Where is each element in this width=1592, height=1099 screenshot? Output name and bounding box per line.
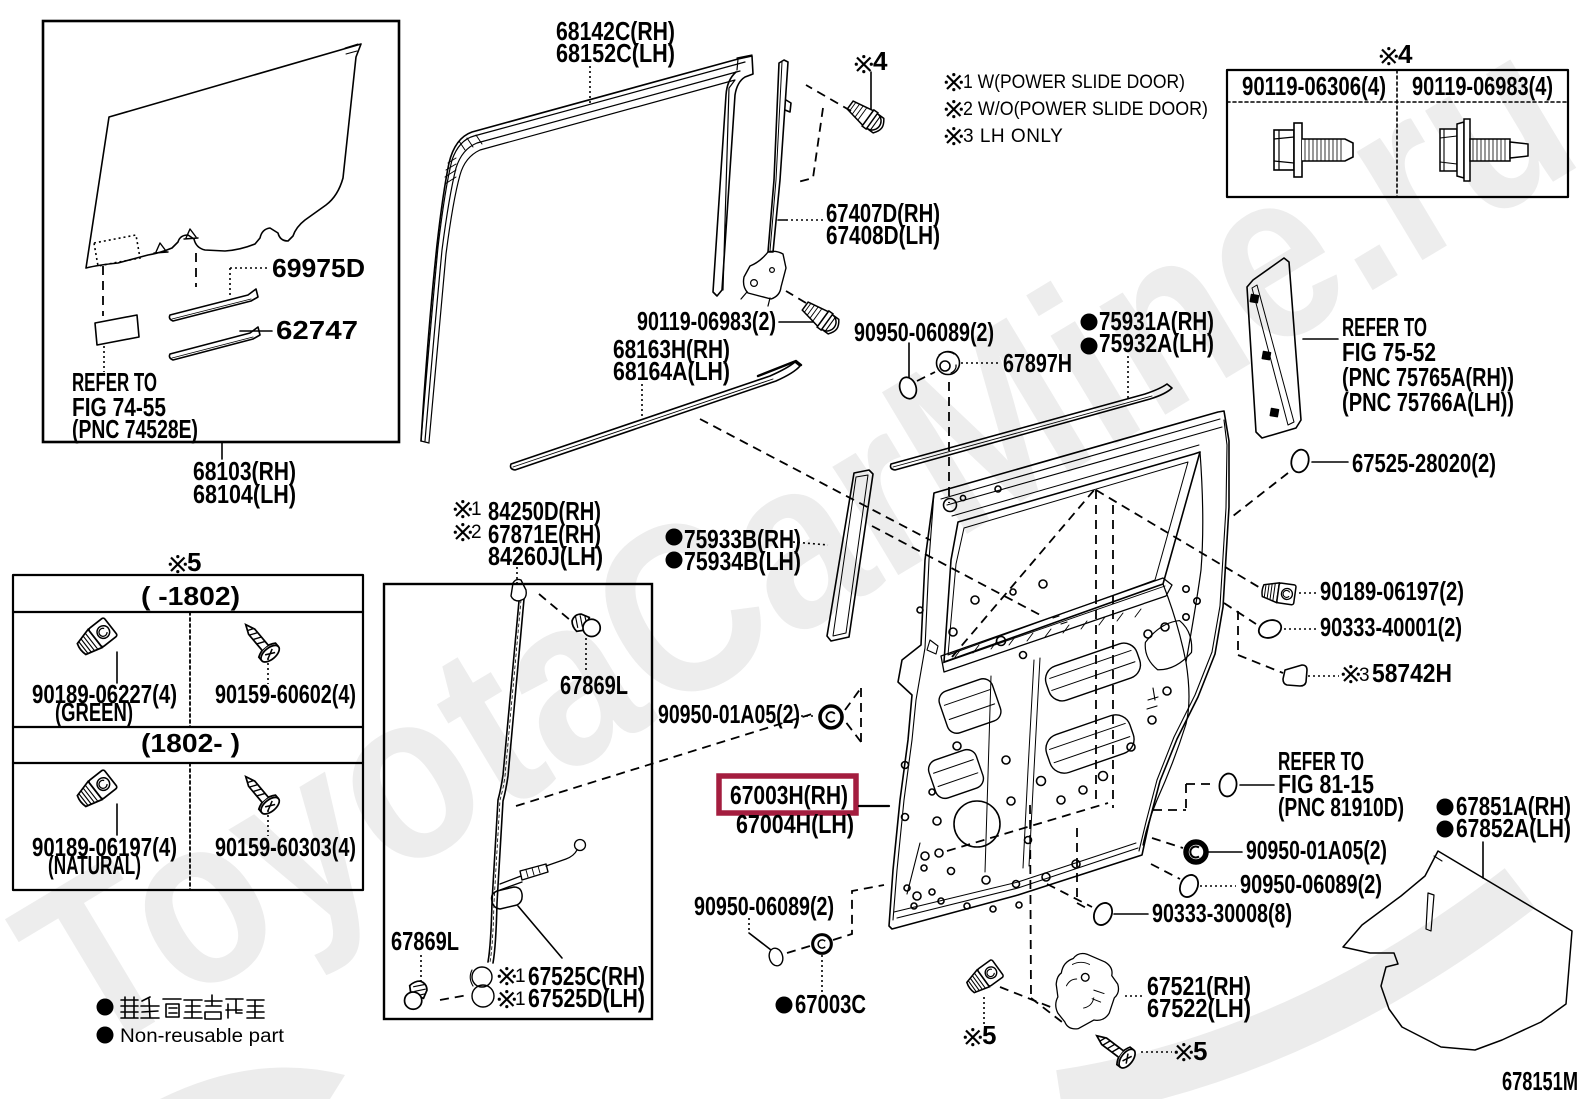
svg-text:68164A(LH): 68164A(LH): [613, 356, 730, 386]
svg-text:1 W(POWER SLIDE DOOR): 1 W(POWER SLIDE DOOR): [963, 72, 1185, 93]
svg-text:(1802- ): (1802- ): [141, 728, 240, 758]
svg-text:1: 1: [515, 966, 526, 987]
svg-text:67003C: 67003C: [795, 989, 866, 1019]
svg-text:75934B(LH): 75934B(LH): [684, 546, 801, 576]
svg-text:67869L: 67869L: [560, 670, 628, 700]
svg-text:90189-06197(2): 90189-06197(2): [1320, 576, 1464, 606]
svg-text:2 W/O(POWER SLIDE DOOR): 2 W/O(POWER SLIDE DOOR): [963, 99, 1208, 120]
svg-text:67408D(LH): 67408D(LH): [826, 220, 940, 250]
svg-text:90950-06089(2): 90950-06089(2): [854, 317, 994, 347]
svg-text:2: 2: [471, 522, 482, 543]
svg-text:90119-06983(4): 90119-06983(4): [1412, 71, 1553, 101]
svg-text:(PNC 75766A(LH)): (PNC 75766A(LH)): [1342, 387, 1514, 417]
svg-text:67897H: 67897H: [1003, 348, 1072, 378]
svg-text:67869L: 67869L: [391, 926, 459, 956]
svg-text:67525D(LH): 67525D(LH): [528, 983, 645, 1013]
svg-text:62747: 62747: [276, 315, 358, 345]
svg-text:90159-60602(4): 90159-60602(4): [215, 679, 356, 709]
svg-text:67525-28020(2): 67525-28020(2): [1352, 448, 1496, 478]
svg-text:(PNC 74528E): (PNC 74528E): [72, 414, 198, 444]
svg-text:( -1802): ( -1802): [141, 581, 240, 611]
svg-text:5: 5: [1193, 1036, 1207, 1066]
svg-text:4: 4: [1398, 39, 1413, 69]
svg-text:90950-01A05(2): 90950-01A05(2): [658, 699, 800, 729]
svg-text:67522(LH): 67522(LH): [1147, 993, 1251, 1023]
svg-text:90950-06089(2): 90950-06089(2): [1240, 869, 1382, 899]
svg-text:3 LH ONLY: 3 LH ONLY: [963, 126, 1063, 147]
svg-text:(PNC 81910D): (PNC 81910D): [1278, 792, 1404, 822]
svg-text:69975D: 69975D: [272, 253, 365, 283]
svg-text:5: 5: [187, 547, 201, 577]
svg-text:58742H: 58742H: [1372, 658, 1452, 688]
svg-text:68104(LH): 68104(LH): [193, 479, 296, 509]
svg-text:90333-30008(8): 90333-30008(8): [1152, 898, 1292, 928]
svg-text:678151M: 678151M: [1502, 1066, 1578, 1096]
svg-text:(GREEN): (GREEN): [55, 697, 133, 727]
svg-text:90333-40001(2): 90333-40001(2): [1320, 612, 1462, 642]
svg-text:90119-06306(4): 90119-06306(4): [1242, 71, 1386, 101]
svg-text:90159-60303(4): 90159-60303(4): [215, 832, 356, 862]
svg-text:(NATURAL): (NATURAL): [48, 850, 141, 880]
svg-text:1: 1: [515, 989, 526, 1010]
svg-text:84260J(LH): 84260J(LH): [488, 541, 603, 571]
svg-text:Non-reusable part: Non-reusable part: [120, 1026, 285, 1047]
svg-text:90950-06089(2): 90950-06089(2): [694, 891, 834, 921]
svg-text:1: 1: [471, 499, 482, 520]
svg-text:75932A(LH): 75932A(LH): [1099, 328, 1214, 358]
svg-text:5: 5: [982, 1020, 996, 1050]
svg-text:67852A(LH): 67852A(LH): [1456, 813, 1571, 843]
svg-text:68152C(LH): 68152C(LH): [556, 38, 675, 68]
svg-text:3: 3: [1359, 665, 1370, 686]
svg-text:67003H(RH): 67003H(RH): [730, 780, 848, 810]
svg-text:90119-06983(2): 90119-06983(2): [637, 306, 776, 336]
svg-text:67004H(LH): 67004H(LH): [736, 809, 854, 839]
svg-text:4: 4: [873, 46, 888, 76]
svg-text:90950-01A05(2): 90950-01A05(2): [1246, 835, 1387, 865]
